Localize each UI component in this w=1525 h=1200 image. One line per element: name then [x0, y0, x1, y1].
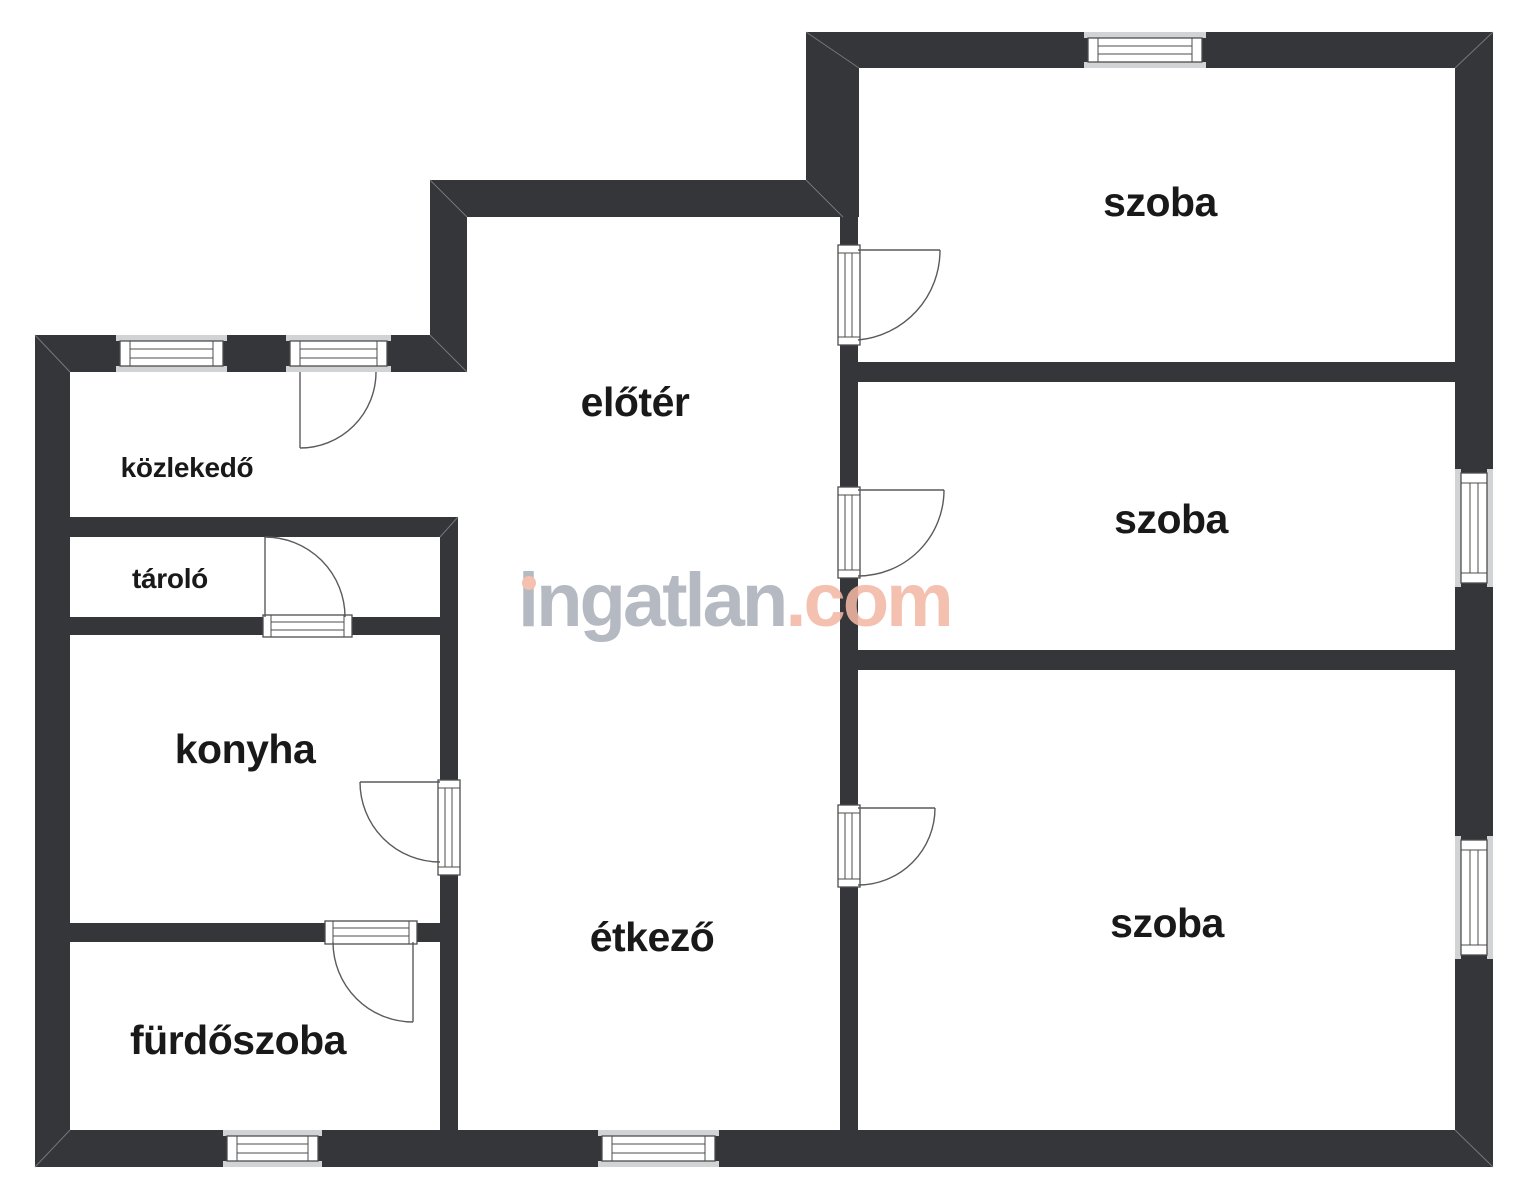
- room-label-etkezo: étkező: [590, 914, 715, 960]
- wall-outer-left: [35, 335, 70, 1167]
- room-label-tarolo: tároló: [132, 563, 208, 594]
- wall-outer-right: [1455, 32, 1493, 1167]
- room-label-konyha: konyha: [175, 726, 317, 772]
- door-symbol-furdoszoba: [325, 921, 417, 1022]
- floor-plan-page: szoba szoba szoba előtér közlekedő tárol…: [0, 0, 1525, 1200]
- watermark-i-dot-icon: [522, 576, 536, 590]
- window-symbol-furdoszoba-bottom: [223, 1130, 322, 1167]
- door-symbol-szoba1: [838, 245, 940, 345]
- room-label-kozlekedo: közlekedő: [121, 452, 254, 483]
- window-symbol-szoba3-right: [1455, 836, 1493, 959]
- window-symbol-etkezo-bottom: [598, 1130, 719, 1167]
- wall-eloter-top: [430, 180, 859, 217]
- room-label-szoba-3: szoba: [1110, 900, 1225, 946]
- watermark-suffix: .com: [785, 558, 950, 643]
- wall-kozlekedo-top: [35, 335, 467, 372]
- window-symbol-szoba1-top: [1084, 32, 1206, 68]
- room-label-szoba-2: szoba: [1114, 496, 1229, 542]
- ingatlan-watermark: ingatlan.com: [518, 563, 951, 639]
- watermark-brand: ingatlan: [518, 558, 785, 643]
- wall-tarolo-top: [70, 517, 458, 537]
- wall-central-vertical: [840, 217, 858, 1130]
- wall-divider-szoba1-szoba2: [858, 362, 1455, 382]
- window-symbol-szoba2-right: [1455, 469, 1493, 587]
- wall-divider-szoba2-szoba3: [858, 650, 1455, 670]
- room-label-szoba-1: szoba: [1103, 179, 1218, 225]
- door-symbol-entry-kozlekedo: [286, 335, 391, 448]
- door-symbol-szoba3: [838, 805, 935, 887]
- room-label-furdoszoba: fürdőszoba: [130, 1017, 348, 1063]
- door-symbol-konyha: [360, 780, 460, 875]
- room-label-eloter: előtér: [581, 379, 690, 425]
- window-symbol-kozlekedo: [116, 335, 227, 372]
- door-symbol-tarolo: [263, 537, 352, 637]
